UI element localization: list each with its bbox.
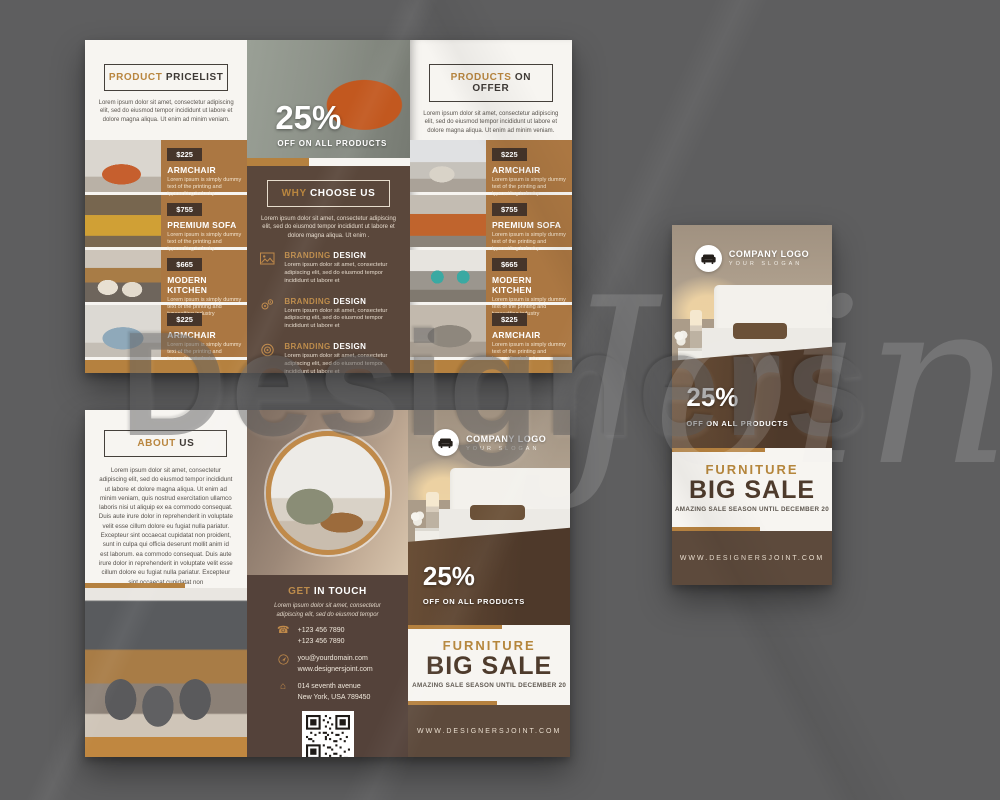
image-icon xyxy=(260,252,277,270)
photo-lamp xyxy=(690,310,703,348)
phone-number: +123 456 7890 xyxy=(298,637,345,648)
headline-main: BIG SALE xyxy=(426,653,552,679)
photo-pillow xyxy=(733,323,787,339)
panel-why-choose-us: 25% OFF ON ALL PRODUCTS WHY CHOOSE US Lo… xyxy=(247,40,409,373)
trifold-outside: PRODUCT PRICELIST Lorem ipsum dolor sit … xyxy=(85,40,572,373)
product-info: $755 PREMIUM SOFA Lorem ipsum is simply … xyxy=(161,195,247,247)
cover: 25% OFF ON ALL PRODUCTS COMPANY LOGO YOU… xyxy=(672,225,832,585)
pricelist-title-rest: PRICELIST xyxy=(166,72,224,83)
product-info: $225 ARMCHAIR Lorem ipsum is simply dumm… xyxy=(486,140,572,192)
discount-subline: OFF ON ALL PRODUCTS xyxy=(423,597,525,606)
headline-main: BIG SALE xyxy=(689,477,815,503)
why-title-accent: WHY xyxy=(282,188,307,199)
feature-item: BRANDING DESIGN Lorem ipsum dolor sit am… xyxy=(247,297,409,331)
website-url: WWW.DESIGNERSJOINT.COM xyxy=(680,555,824,562)
divider-strip xyxy=(247,158,409,166)
home-icon: ⌂ xyxy=(277,682,290,692)
contact-body: GET IN TOUCH Lorem ipsum dolor sit amet,… xyxy=(247,575,409,757)
qr-code xyxy=(302,711,354,757)
feature-title-accent: BRANDING xyxy=(284,297,330,306)
panel-products-on-offer: PRODUCTS ON OFFER Lorem ipsum dolor sit … xyxy=(410,40,572,373)
interior-photo xyxy=(247,410,409,575)
trifold-inside: ABOUT US Lorem ipsum dolor sit amet, con… xyxy=(85,410,570,757)
cover: 25% OFF ON ALL PRODUCTS COMPANY LOGO YOU… xyxy=(408,410,570,757)
photo-lamp xyxy=(426,492,439,529)
contact-web-lines: you@yourdomain.com www.designersjoint.co… xyxy=(298,654,373,675)
feature-title: BRANDING DESIGN xyxy=(284,251,396,260)
feature-item: BRANDING DESIGN Lorem ipsum dolor sit am… xyxy=(247,342,409,373)
photo-flowers xyxy=(674,328,688,348)
contact-intro: Lorem ipsum dolor sit amet, consectetur … xyxy=(247,602,409,619)
product-price: $225 xyxy=(167,313,202,326)
feature-title-rest: DESIGN xyxy=(333,297,366,306)
phone-icon: ☎ xyxy=(277,626,290,636)
product-name: MODERN KITCHEN xyxy=(492,275,566,295)
offer-title-accent: PRODUCTS xyxy=(451,72,512,83)
product-name: ARMCHAIR xyxy=(167,330,241,340)
product-row: $755 PREMIUM SOFA Lorem ipsum is simply … xyxy=(410,195,572,247)
pricelist-title-accent: PRODUCT xyxy=(109,72,163,83)
logo-title: COMPANY LOGO xyxy=(466,434,546,444)
product-price: $225 xyxy=(167,148,202,161)
product-row: $225 ARMCHAIR Lorem ipsum is simply dumm… xyxy=(410,140,572,192)
email-address: you@yourdomain.com xyxy=(298,654,373,665)
about-body: Lorem ipsum dolor sit amet, consectetur … xyxy=(85,466,247,587)
product-info: $225 ARMCHAIR Lorem ipsum is simply dumm… xyxy=(161,305,247,357)
pricelist-title: PRODUCT PRICELIST xyxy=(104,64,227,91)
product-row: $225 ARMCHAIR Lorem ipsum is simply dumm… xyxy=(85,140,247,192)
product-name: ARMCHAIR xyxy=(167,165,241,175)
living-room-circle-photo xyxy=(266,431,390,555)
why-body: WHY CHOOSE US Lorem ipsum dolor sit amet… xyxy=(247,166,409,373)
headline-subline: AMAZING SALE SEASON UNTIL DECEMBER 20 xyxy=(412,682,566,689)
discount-subline: OFF ON ALL PRODUCTS xyxy=(686,419,788,428)
contact-web-row: you@yourdomain.com www.designersjoint.co… xyxy=(247,654,409,675)
product-info: $225 ARMCHAIR Lorem ipsum is simply dumm… xyxy=(161,140,247,192)
headline-accent: FURNITURE xyxy=(443,638,536,653)
why-intro: Lorem ipsum dolor sit amet, consectetur … xyxy=(247,215,409,240)
discount-headline: 25% xyxy=(423,563,475,589)
pricelist-rows: $225 ARMCHAIR Lorem ipsum is simply dumm… xyxy=(85,140,247,360)
product-photo-orange-sofa xyxy=(410,195,486,247)
contact-phone-lines: +123 456 7890 +123 456 7890 xyxy=(298,626,345,647)
product-price: $755 xyxy=(167,203,202,216)
product-row: $225 ARMCHAIR Lorem ipsum is simply dumm… xyxy=(410,305,572,357)
cover-footer: WWW.DESIGNERSJOINT.COM xyxy=(672,531,832,585)
rack-card-front: 25% OFF ON ALL PRODUCTS COMPANY LOGO YOU… xyxy=(672,225,832,585)
product-price: $665 xyxy=(492,258,527,271)
discount-subline: OFF ON ALL PRODUCTS xyxy=(277,139,387,148)
target-icon xyxy=(260,343,277,362)
product-info: $225 ARMCHAIR Lorem ipsum is simply dumm… xyxy=(486,305,572,357)
headline-block: FURNITURE BIG SALE AMAZING SALE SEASON U… xyxy=(408,625,570,701)
panel-about-us: ABOUT US Lorem ipsum dolor sit amet, con… xyxy=(85,410,247,757)
why-title: WHY CHOOSE US xyxy=(267,180,390,207)
hero-sofa-photo: 25% OFF ON ALL PRODUCTS xyxy=(247,40,409,158)
address-line: New York, USA 789450 xyxy=(298,693,371,704)
feature-title-rest: DESIGN xyxy=(333,342,366,351)
logo-slogan: YOUR SLOGAN xyxy=(729,261,809,267)
send-icon xyxy=(277,654,290,668)
phone-number: +123 456 7890 xyxy=(298,626,345,637)
company-logo: COMPANY LOGO YOUR SLOGAN xyxy=(408,429,570,456)
gold-chip xyxy=(247,158,309,166)
panel-get-in-touch: GET IN TOUCH Lorem ipsum dolor sit amet,… xyxy=(247,410,409,757)
logo-title: COMPANY LOGO xyxy=(729,249,809,259)
feature-title-accent: BRANDING xyxy=(284,342,330,351)
product-price: $225 xyxy=(492,148,527,161)
panel-product-pricelist: PRODUCT PRICELIST Lorem ipsum dolor sit … xyxy=(85,40,247,373)
contact-address-lines: 014 seventh avenue New York, USA 789450 xyxy=(298,682,371,703)
offer-rows: $225 ARMCHAIR Lorem ipsum is simply dumm… xyxy=(410,140,572,360)
product-name: PREMIUM SOFA xyxy=(167,220,241,230)
cover-footer: WWW.DESIGNERSJOINT.COM xyxy=(408,705,570,757)
feature-text: BRANDING DESIGN Lorem ipsum dolor sit am… xyxy=(284,251,396,285)
product-name: ARMCHAIR xyxy=(492,165,566,175)
product-info: $665 MODERN KITCHEN Lorem ipsum is simpl… xyxy=(161,250,247,302)
logo-slogan: YOUR SLOGAN xyxy=(466,446,546,452)
product-photo-blue-armchair xyxy=(85,305,161,357)
gold-strip xyxy=(85,737,247,757)
product-photo-kitchen xyxy=(85,250,161,302)
about-title-accent: ABOUT xyxy=(137,438,176,449)
product-photo-showroom xyxy=(410,140,486,192)
feature-title: BRANDING DESIGN xyxy=(284,342,396,351)
headline-subline: AMAZING SALE SEASON UNTIL DECEMBER 20 xyxy=(675,506,829,513)
discount-headline: 25% xyxy=(275,101,341,134)
feature-item: BRANDING DESIGN Lorem ipsum dolor sit am… xyxy=(247,251,409,285)
website-url: WWW.DESIGNERSJOINT.COM xyxy=(417,728,561,735)
company-logo: COMPANY LOGO YOUR SLOGAN xyxy=(672,245,832,272)
feature-desc: Lorem ipsum dolor sit amet, consectetur … xyxy=(284,262,396,285)
contact-title: GET IN TOUCH xyxy=(247,586,409,597)
feature-desc: Lorem ipsum dolor sit amet, consectetur … xyxy=(284,308,396,331)
product-photo-orange-armchair xyxy=(85,140,161,192)
contact-address-row: ⌂ 014 seventh avenue New York, USA 78945… xyxy=(247,682,409,703)
about-title-rest: US xyxy=(179,438,194,449)
feature-title: BRANDING DESIGN xyxy=(284,297,396,306)
feature-title-accent: BRANDING xyxy=(284,251,330,260)
product-photo-yellow-sofa xyxy=(85,195,161,247)
photo-pillow xyxy=(470,505,525,520)
product-row: $665 MODERN KITCHEN Lorem ipsum is simpl… xyxy=(410,250,572,302)
contact-title-accent: GET xyxy=(288,586,310,597)
sofa-logo-icon xyxy=(695,245,722,272)
headline-accent: FURNITURE xyxy=(705,462,798,477)
feature-text: BRANDING DESIGN Lorem ipsum dolor sit am… xyxy=(284,297,396,331)
gold-strip xyxy=(408,625,502,629)
mockup-background: PRODUCT PRICELIST Lorem ipsum dolor sit … xyxy=(0,0,1000,800)
gold-strip xyxy=(672,448,765,452)
offer-title: PRODUCTS ON OFFER xyxy=(429,64,552,102)
panel-front-cover: 25% OFF ON ALL PRODUCTS COMPANY LOGO YOU… xyxy=(408,410,570,757)
feature-title-rest: DESIGN xyxy=(333,251,366,260)
gears-icon xyxy=(260,298,277,316)
product-name: ARMCHAIR xyxy=(492,330,566,340)
discount-headline: 25% xyxy=(686,384,738,410)
address-line: 014 seventh avenue xyxy=(298,682,371,693)
product-row: $665 MODERN KITCHEN Lorem ipsum is simpl… xyxy=(85,250,247,302)
pricelist-intro: Lorem ipsum dolor sit amet, consectetur … xyxy=(85,99,247,124)
product-info: $755 PREMIUM SOFA Lorem ipsum is simply … xyxy=(486,195,572,247)
photo-flowers xyxy=(410,509,425,528)
offer-intro: Lorem ipsum dolor sit amet, consectetur … xyxy=(410,110,572,135)
product-info: $665 MODERN KITCHEN Lorem ipsum is simpl… xyxy=(486,250,572,302)
product-photo-teal-sofa xyxy=(410,250,486,302)
product-price: $755 xyxy=(492,203,527,216)
product-name: PREMIUM SOFA xyxy=(492,220,566,230)
why-title-rest: CHOOSE US xyxy=(310,188,375,199)
kitchen-photo xyxy=(85,588,247,757)
product-row: $755 PREMIUM SOFA Lorem ipsum is simply … xyxy=(85,195,247,247)
logo-text: COMPANY LOGO YOUR SLOGAN xyxy=(729,249,809,267)
feature-desc: Lorem ipsum dolor sit amet, consectetur … xyxy=(284,353,396,373)
sofa-logo-icon xyxy=(432,429,459,456)
logo-text: COMPANY LOGO YOUR SLOGAN xyxy=(466,434,546,452)
product-photo-gray-lounge xyxy=(410,305,486,357)
about-title: ABOUT US xyxy=(104,430,227,457)
website-url: www.designersjoint.com xyxy=(298,665,373,676)
product-row: $225 ARMCHAIR Lorem ipsum is simply dumm… xyxy=(85,305,247,357)
gold-strip xyxy=(85,360,247,373)
gold-strip xyxy=(410,360,572,373)
feature-text: BRANDING DESIGN Lorem ipsum dolor sit am… xyxy=(284,342,396,373)
contact-title-rest: IN TOUCH xyxy=(314,586,367,597)
product-name: MODERN KITCHEN xyxy=(167,275,241,295)
product-price: $225 xyxy=(492,313,527,326)
headline-block: FURNITURE BIG SALE AMAZING SALE SEASON U… xyxy=(672,448,832,527)
contact-phone-row: ☎ +123 456 7890 +123 456 7890 xyxy=(247,626,409,647)
product-price: $665 xyxy=(167,258,202,271)
